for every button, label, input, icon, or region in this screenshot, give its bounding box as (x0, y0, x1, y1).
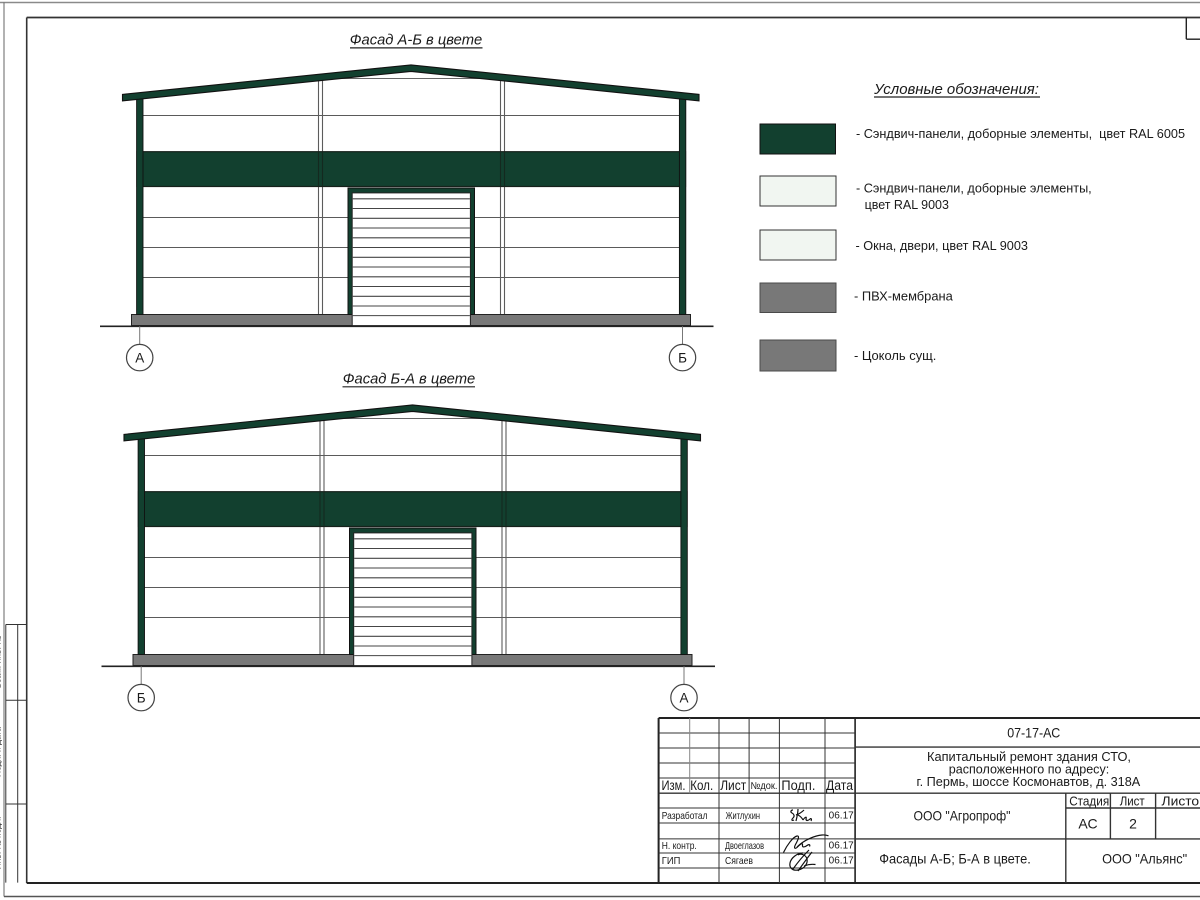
svg-text:Фасад Б-А в цвете: Фасад Б-А в цвете (343, 370, 476, 387)
svg-text:Стадия: Стадия (1069, 793, 1109, 808)
svg-text:2: 2 (1129, 816, 1137, 832)
svg-text:Листов: Листов (1162, 793, 1200, 808)
svg-text:Б: Б (678, 350, 687, 365)
svg-text:Н. контр.: Н. контр. (662, 840, 697, 852)
svg-text:06.17: 06.17 (829, 856, 854, 867)
svg-text:Подп. и дата: Подп. и дата (0, 727, 3, 777)
svg-text:- Цоколь сущ.: - Цоколь сущ. (854, 348, 936, 363)
svg-text:А: А (679, 690, 688, 705)
svg-text:ГИП: ГИП (662, 855, 681, 867)
svg-text:Разработал: Разработал (662, 810, 708, 822)
svg-text:Кол.: Кол. (690, 778, 713, 793)
svg-text:Сягаев: Сягаев (725, 855, 753, 867)
svg-text:Б: Б (137, 690, 146, 705)
svg-text:Двоеглазов: Двоеглазов (725, 840, 764, 852)
svg-text:Взам. инв. №: Взам. инв. № (0, 636, 3, 689)
svg-text:07-17-АС: 07-17-АС (1007, 725, 1060, 741)
svg-text:- Окна, двери, цвет RAL 9003: - Окна, двери, цвет RAL 9003 (856, 238, 1029, 253)
svg-text:Подп.: Подп. (781, 778, 815, 793)
svg-text:Фасад А-Б в цвете: Фасад А-Б в цвете (350, 32, 483, 49)
svg-text:АС: АС (1078, 816, 1097, 832)
svg-text:06.17: 06.17 (829, 841, 854, 852)
svg-text:ООО "Альянс": ООО "Альянс" (1102, 850, 1187, 866)
svg-text:г. Пермь, шоссе Космонавтов, д: г. Пермь, шоссе Космонавтов, д. 318А (917, 774, 1141, 789)
svg-text:06.17: 06.17 (829, 811, 854, 822)
svg-text:- ПВХ-мембрана: - ПВХ-мембрана (854, 289, 953, 304)
svg-text:Лист: Лист (1120, 793, 1145, 808)
svg-text:Дата: Дата (826, 778, 853, 793)
svg-text:ООО "Агропроф": ООО "Агропроф" (914, 808, 1011, 824)
svg-text:Инв. № подл.: Инв. № подл. (0, 817, 3, 870)
svg-text:Житлухин: Житлухин (726, 810, 761, 822)
svg-text:цвет RAL 9003: цвет RAL 9003 (865, 197, 949, 212)
svg-text:Изм.: Изм. (662, 778, 686, 793)
svg-text:Условные обозначения:: Условные обозначения: (873, 81, 1039, 98)
svg-text:Лист: Лист (720, 778, 746, 793)
svg-text:Фасады А-Б; Б-А в цвете.: Фасады А-Б; Б-А в цвете. (879, 850, 1031, 866)
svg-text:№док.: №док. (751, 781, 778, 792)
svg-text:- Сэндвич-панели, доборные эле: - Сэндвич-панели, доборные элементы, цве… (856, 126, 1185, 141)
svg-text:А: А (135, 350, 144, 365)
svg-text:- Сэндвич-панели, доборные эле: - Сэндвич-панели, доборные элементы, (856, 181, 1092, 196)
